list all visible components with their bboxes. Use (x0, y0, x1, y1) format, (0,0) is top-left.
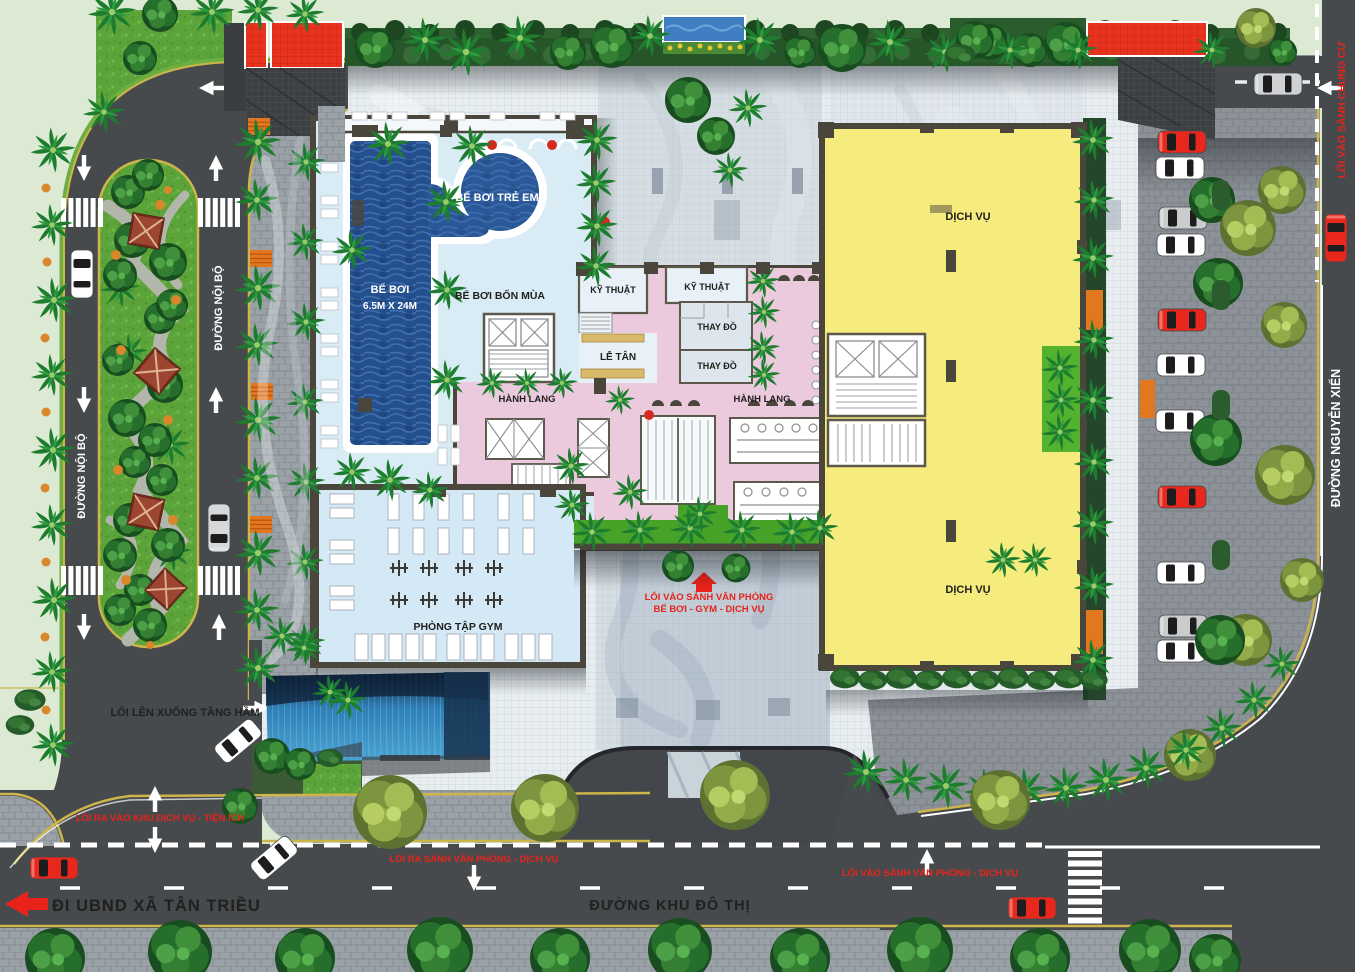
svg-text:ĐƯỜNG KHU ĐÔ THỊ: ĐƯỜNG KHU ĐÔ THỊ (589, 896, 750, 914)
svg-text:HÀNH LANG: HÀNH LANG (734, 394, 791, 405)
svg-text:LỐI VÀO SẢNH VĂN PHÒNG - DỊCH: LỐI VÀO SẢNH VĂN PHÒNG - DỊCH VỤ (842, 867, 1018, 879)
svg-text:BỂ BƠI - GYM - DỊCH VỤ: BỂ BƠI - GYM - DỊCH VỤ (653, 603, 764, 615)
svg-text:DỊCH VỤ: DỊCH VỤ (945, 211, 990, 223)
svg-text:ĐƯỜNG NỘI BỘ: ĐƯỜNG NỘI BỘ (75, 433, 88, 519)
svg-text:KỸ THUẬT: KỸ THUẬT (590, 284, 636, 295)
svg-text:ĐƯỜNG NGUYỄN XIỂN: ĐƯỜNG NGUYỄN XIỂN (1328, 369, 1343, 507)
svg-text:BỂ BƠI TRẺ EM: BỂ BƠI TRẺ EM (455, 191, 538, 204)
svg-text:BỂ BƠI BỐN MÙA: BỂ BƠI BỐN MÙA (455, 288, 545, 302)
svg-text:LỐI LÊN XUỐNG TẦNG HẦM: LỐI LÊN XUỐNG TẦNG HẦM (110, 705, 259, 719)
svg-text:THAY ĐỒ: THAY ĐỒ (697, 360, 737, 371)
svg-text:LỐI RA SẢNH VĂN PHÒNG - DỊCH V: LỐI RA SẢNH VĂN PHÒNG - DỊCH VỤ (389, 853, 558, 865)
svg-text:LỐI VÀO SẢNH VĂN PHÒNG: LỐI VÀO SẢNH VĂN PHÒNG (645, 591, 774, 603)
svg-text:ĐƯỜNG NỘI BỘ: ĐƯỜNG NỘI BỘ (212, 265, 225, 351)
svg-text:BỂ BƠI: BỂ BƠI (371, 283, 410, 296)
svg-text:6.5M X 24M: 6.5M X 24M (363, 301, 417, 312)
svg-text:HÀNH LANG: HÀNH LANG (499, 394, 556, 405)
svg-text:ĐI UBND XÃ TÂN TRIỀU: ĐI UBND XÃ TÂN TRIỀU (52, 895, 261, 915)
svg-text:PHÒNG TẬP GYM: PHÒNG TẬP GYM (413, 620, 502, 633)
svg-text:LỄ TÂN: LỄ TÂN (600, 350, 636, 363)
svg-text:LỐI VÀO SẢNH CHUNG CƯ: LỐI VÀO SẢNH CHUNG CƯ (1334, 41, 1348, 178)
svg-text:THAY ĐỒ: THAY ĐỒ (697, 321, 737, 332)
svg-text:DỊCH VỤ: DỊCH VỤ (945, 584, 990, 596)
svg-text:KỸ THUẬT: KỸ THUẬT (684, 281, 730, 292)
svg-text:LỐI RA VÀO KHU DỊCH VỤ - TIỆN: LỐI RA VÀO KHU DỊCH VỤ - TIỆN ÍCH (75, 812, 244, 824)
